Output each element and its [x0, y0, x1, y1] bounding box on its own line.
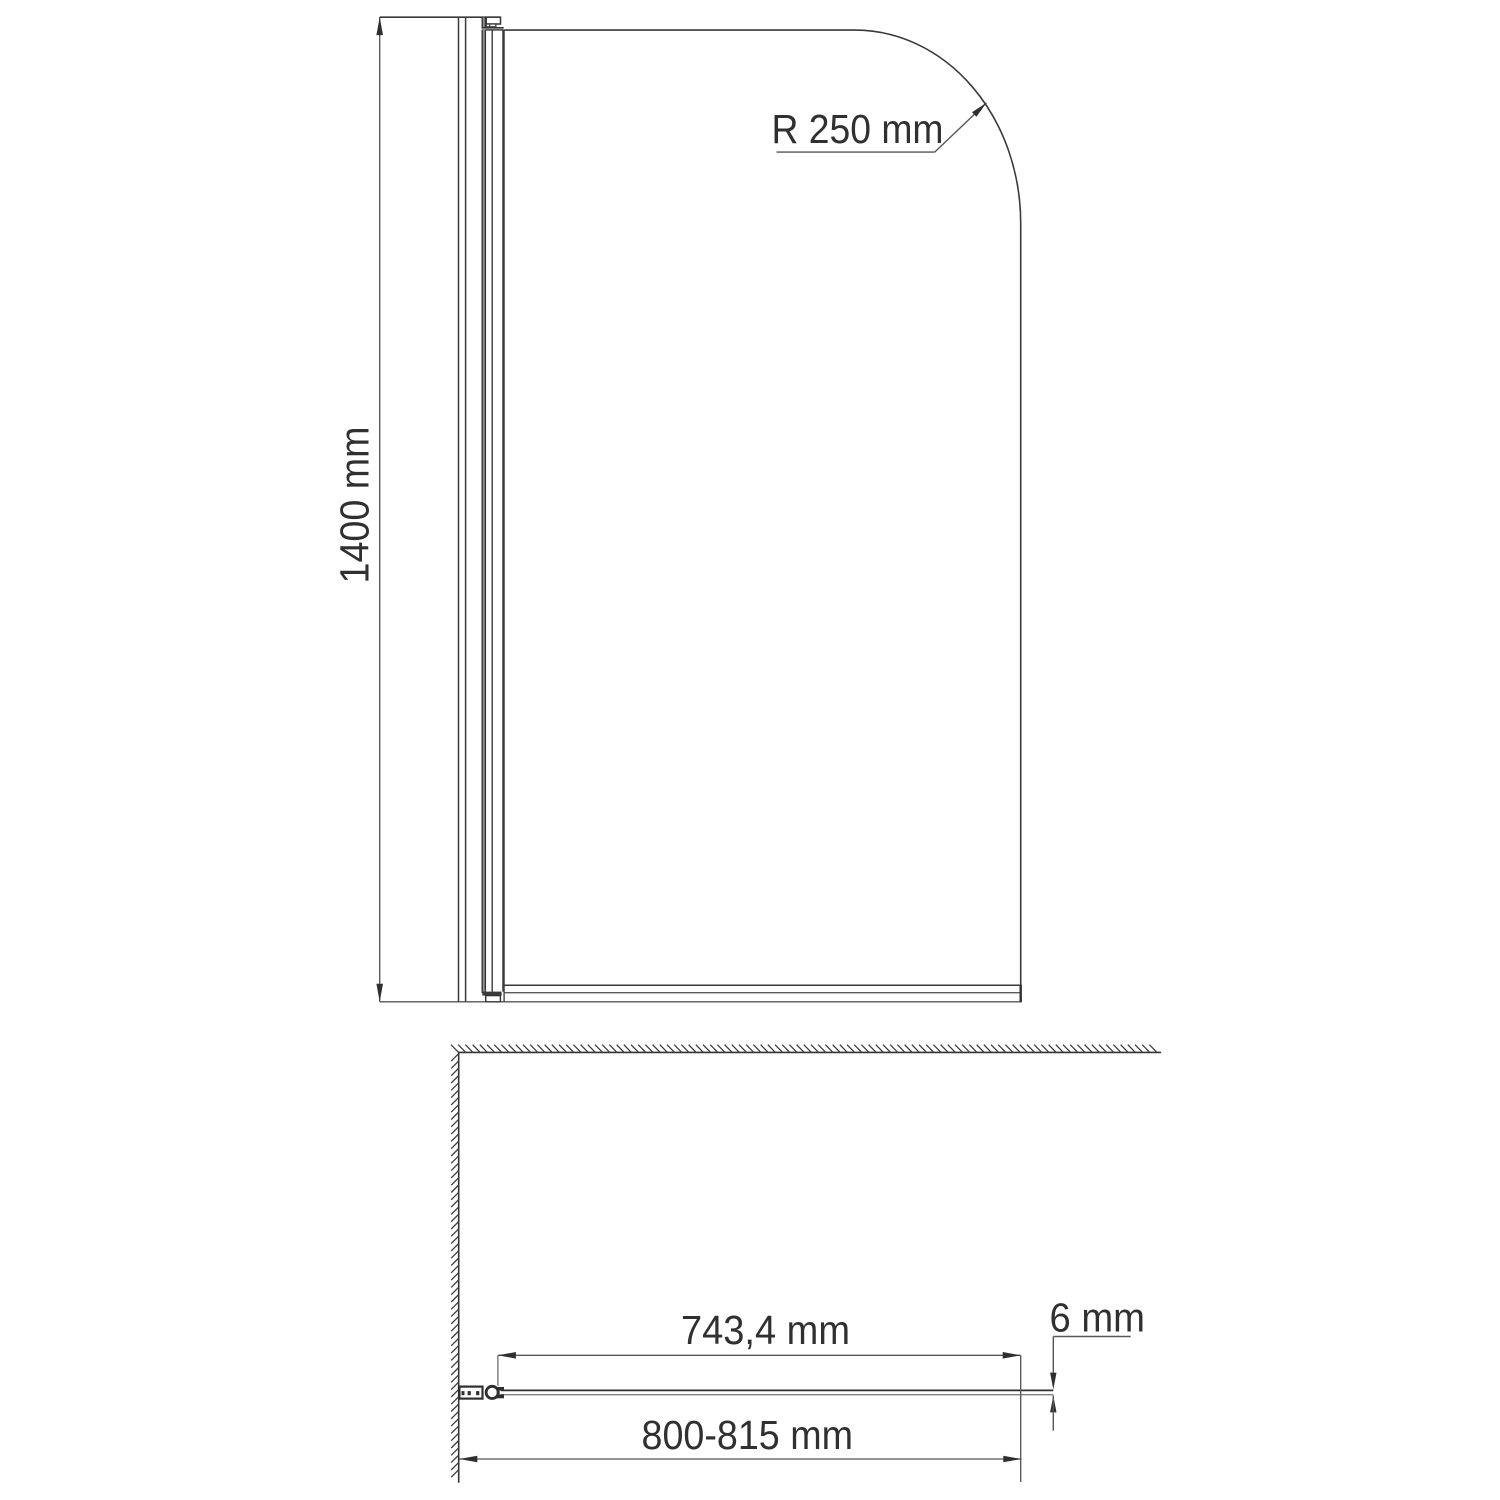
svg-text:R 250 mm: R 250 mm: [772, 106, 944, 152]
svg-text:1400 mm: 1400 mm: [332, 427, 378, 584]
svg-text:743,4 mm: 743,4 mm: [681, 1307, 850, 1353]
svg-text:6 mm: 6 mm: [1050, 1294, 1146, 1340]
svg-text:800-815 mm: 800-815 mm: [642, 1412, 854, 1458]
